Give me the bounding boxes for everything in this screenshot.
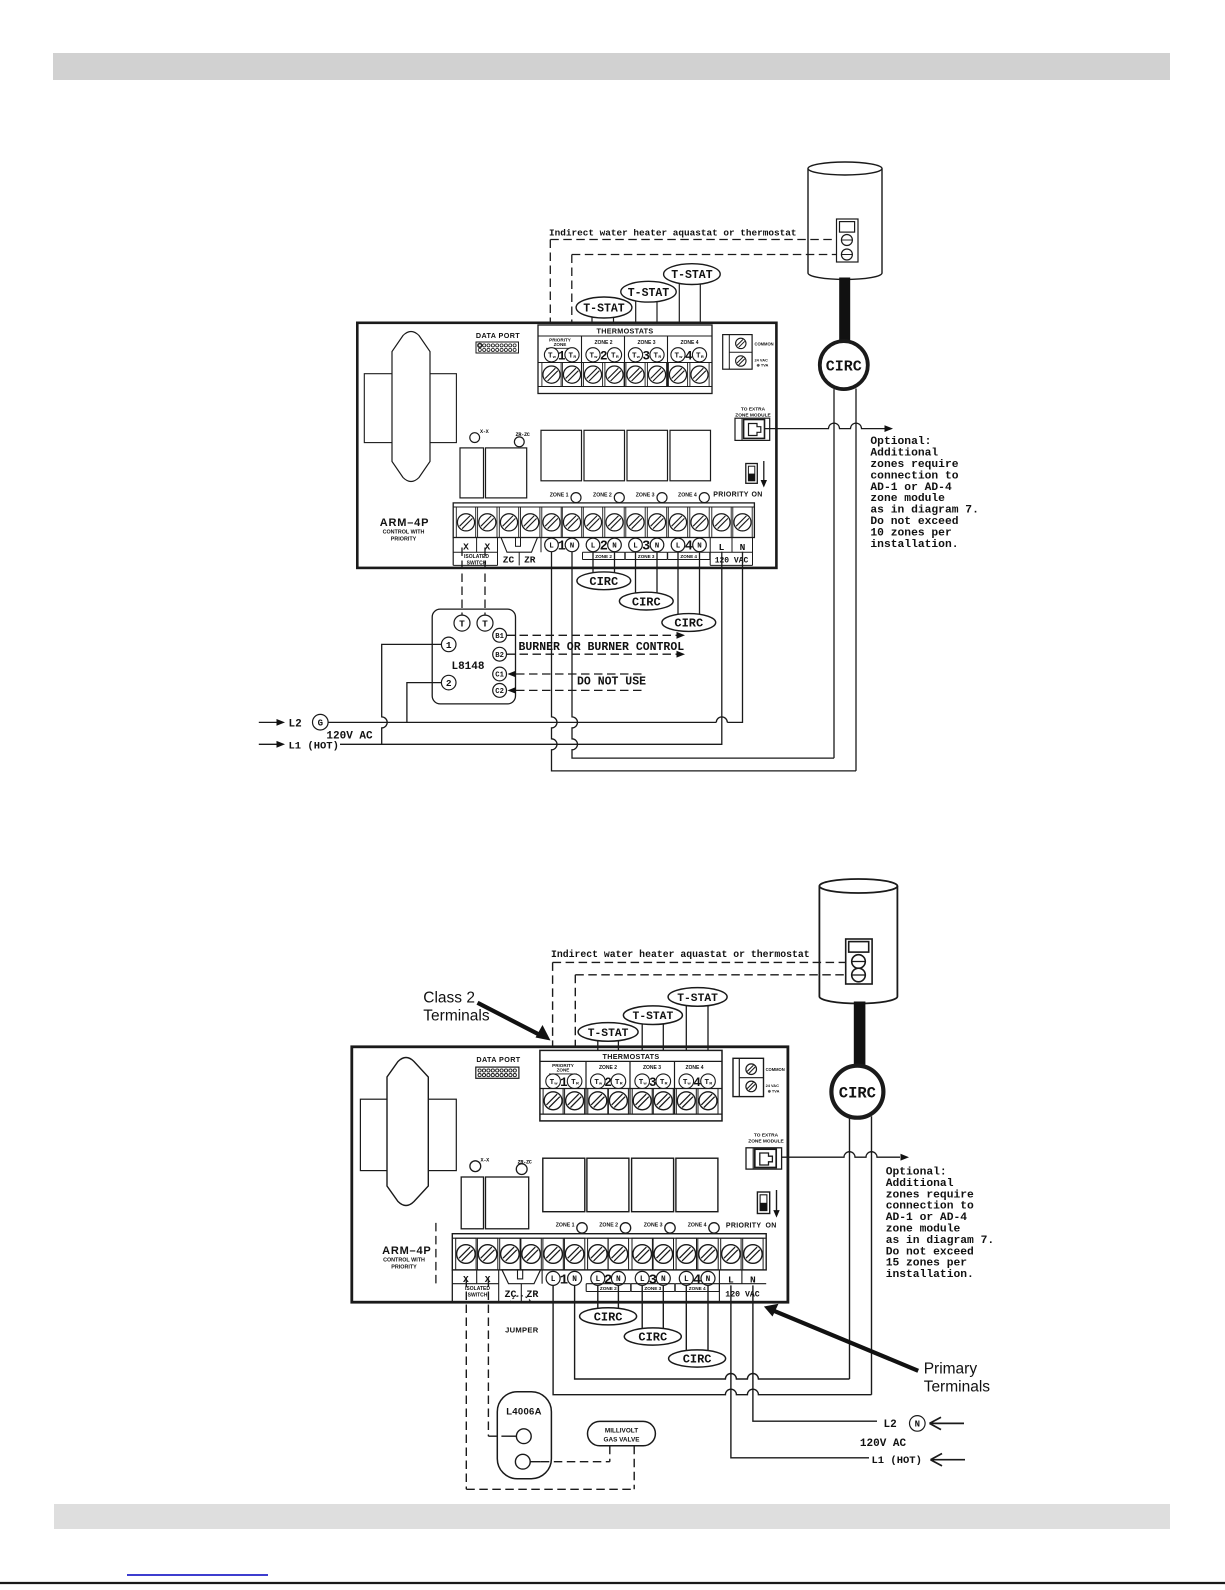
svg-text:T-STAT: T-STAT [583, 303, 625, 316]
svg-text:installation.: installation. [886, 1269, 974, 1281]
svg-text:THERMOSTATS: THERMOSTATS [597, 327, 654, 336]
svg-text:installation.: installation. [870, 539, 958, 551]
svg-text:ZONE 4: ZONE 4 [680, 340, 698, 346]
svg-text:10 zones per: 10 zones per [870, 527, 951, 539]
svg-text:zone module: zone module [870, 493, 945, 505]
svg-text:N: N [572, 1276, 577, 1284]
svg-text:R: R [665, 1081, 668, 1086]
svg-text:R: R [573, 354, 576, 359]
svg-text:zones require: zones require [870, 459, 958, 471]
svg-text:1: 1 [558, 349, 566, 363]
svg-text:Optional:: Optional: [886, 1167, 947, 1179]
svg-text:ZONE 3: ZONE 3 [636, 492, 655, 498]
svg-text:R: R [616, 354, 619, 359]
svg-text:C1: C1 [495, 672, 504, 680]
svg-text:R: R [709, 1081, 712, 1086]
svg-text:L2: L2 [884, 1419, 897, 1431]
svg-text:⊕ TVA: ⊕ TVA [768, 1089, 780, 1094]
svg-text:ZONE 3: ZONE 3 [644, 1286, 661, 1291]
svg-text:ZR: ZR [524, 555, 536, 566]
svg-text:CIRC: CIRC [674, 617, 703, 631]
svg-text:120 VAC: 120 VAC [715, 556, 749, 565]
svg-text:MILLIVOLT: MILLIVOLT [605, 1427, 638, 1434]
svg-text:15 zones per: 15 zones per [886, 1258, 967, 1270]
svg-text:N: N [612, 543, 617, 551]
svg-text:ZONE 2: ZONE 2 [593, 492, 612, 498]
svg-text:X: X [463, 542, 469, 553]
svg-text:2: 2 [600, 349, 608, 363]
svg-text:Do not exceed: Do not exceed [886, 1246, 974, 1258]
svg-text:CIRC: CIRC [594, 1311, 623, 1325]
svg-text:L: L [640, 1276, 645, 1284]
svg-text:ZONE 2: ZONE 2 [594, 340, 612, 346]
svg-text:ZONE 1: ZONE 1 [556, 1223, 575, 1229]
svg-text:ZONE MODULE: ZONE MODULE [748, 1139, 784, 1145]
svg-text:ZC: ZC [504, 1290, 516, 1301]
svg-text:PRIORITY: PRIORITY [391, 1264, 417, 1270]
svg-text:ZC: ZC [503, 555, 515, 566]
svg-text:24 VAC: 24 VAC [766, 1083, 780, 1088]
svg-text:4: 4 [693, 1076, 701, 1090]
svg-text:CIRC: CIRC [638, 1331, 667, 1345]
svg-text:CONTROL WITH: CONTROL WITH [383, 1258, 425, 1264]
svg-text:as in diagram 7.: as in diagram 7. [886, 1235, 994, 1247]
svg-text:L2: L2 [289, 719, 302, 731]
svg-text:L1 (HOT): L1 (HOT) [289, 741, 339, 753]
svg-text:Primary: Primary [924, 1360, 978, 1377]
svg-text:ARM–4P: ARM–4P [382, 1245, 431, 1257]
svg-text:L: L [633, 543, 638, 551]
svg-text:N: N [655, 543, 660, 551]
svg-text:L1 (HOT): L1 (HOT) [872, 1455, 922, 1467]
svg-text:T-STAT: T-STAT [677, 993, 718, 1005]
svg-text:1: 1 [560, 1272, 568, 1288]
svg-text:T-STAT: T-STAT [633, 1011, 674, 1023]
svg-text:Terminals: Terminals [423, 1007, 490, 1024]
svg-text:R: R [620, 1081, 623, 1086]
svg-text:SWITCH: SWITCH [468, 1292, 488, 1298]
svg-text:T: T [459, 619, 465, 630]
svg-text:X-X: X-X [481, 1158, 491, 1164]
svg-text:ZONE 4: ZONE 4 [689, 1286, 706, 1291]
svg-text:TO EXTRA: TO EXTRA [754, 1133, 779, 1139]
svg-text:COMMON: COMMON [755, 341, 774, 346]
svg-text:connection to: connection to [886, 1201, 974, 1213]
svg-text:THERMOSTATS: THERMOSTATS [603, 1052, 660, 1061]
svg-text:1: 1 [560, 1076, 568, 1090]
svg-text:Do not exceed: Do not exceed [870, 516, 958, 528]
svg-text:L: L [591, 543, 596, 551]
svg-text:zones require: zones require [886, 1189, 974, 1201]
svg-text:L: L [551, 1276, 556, 1284]
svg-text:ZONE 3: ZONE 3 [638, 554, 655, 559]
svg-text:L: L [595, 1276, 600, 1284]
svg-text:BURNER OR BURNER CONTROL: BURNER OR BURNER CONTROL [519, 641, 685, 654]
svg-text:Additional: Additional [886, 1178, 954, 1190]
svg-text:Terminals: Terminals [924, 1378, 991, 1395]
svg-text:PRIORITY: PRIORITY [713, 491, 748, 498]
svg-text:as in diagram 7.: as in diagram 7. [870, 505, 978, 517]
svg-text:DATA PORT: DATA PORT [476, 331, 520, 340]
svg-text:ON: ON [752, 491, 763, 498]
svg-text:ZONE 2: ZONE 2 [595, 554, 612, 559]
svg-text:ZONE 4: ZONE 4 [680, 554, 697, 559]
svg-text:L: L [684, 1276, 689, 1284]
svg-text:Optional:: Optional: [870, 436, 931, 448]
svg-text:CIRC: CIRC [839, 1084, 876, 1102]
svg-text:L: L [549, 543, 554, 551]
svg-text:ZONE 3: ZONE 3 [637, 340, 655, 346]
svg-text:L4006A: L4006A [506, 1406, 542, 1417]
svg-text:R: R [701, 354, 704, 359]
svg-text:T-STAT: T-STAT [588, 1028, 629, 1040]
svg-text:CIRC: CIRC [826, 359, 862, 376]
svg-text:DO NOT USE: DO NOT USE [577, 676, 646, 689]
svg-text:G: G [318, 718, 323, 728]
svg-text:AD-1 or AD-4: AD-1 or AD-4 [886, 1212, 968, 1224]
svg-text:ZONE: ZONE [554, 342, 567, 347]
svg-text:DATA PORT: DATA PORT [476, 1055, 520, 1064]
svg-text:3: 3 [649, 1076, 657, 1090]
svg-text:L: L [719, 542, 725, 553]
svg-text:2: 2 [604, 1076, 612, 1090]
svg-text:N: N [570, 543, 575, 551]
svg-text:N: N [661, 1276, 666, 1284]
svg-text:ZONE: ZONE [557, 1068, 570, 1073]
svg-text:2: 2 [446, 678, 452, 689]
svg-text:zone module: zone module [886, 1224, 961, 1236]
svg-text:ZONE 4: ZONE 4 [678, 492, 697, 498]
svg-text:Indirect water heater aquastat: Indirect water heater aquastat or thermo… [551, 949, 810, 960]
svg-text:TO EXTRA: TO EXTRA [741, 406, 766, 412]
svg-text:4: 4 [685, 349, 693, 363]
svg-text:X-X: X-X [480, 429, 490, 435]
svg-text:ZONE 3: ZONE 3 [643, 1065, 661, 1071]
svg-text:ISOLATED: ISOLATED [465, 1286, 490, 1292]
svg-text:N: N [706, 1276, 711, 1284]
svg-text:ZONE 2: ZONE 2 [600, 1286, 617, 1291]
svg-text:⊕ TVA: ⊕ TVA [757, 363, 769, 368]
svg-text:ON: ON [766, 1223, 777, 1230]
svg-text:L: L [676, 543, 681, 551]
svg-text:ARM–4P: ARM–4P [380, 517, 429, 529]
svg-text:PRIORITY: PRIORITY [726, 1223, 761, 1230]
svg-text:ZONE 4: ZONE 4 [685, 1065, 703, 1071]
svg-text:CIRC: CIRC [632, 595, 661, 609]
svg-text:24 VAC: 24 VAC [755, 357, 769, 362]
svg-text:Class 2: Class 2 [423, 989, 475, 1006]
svg-text:ZONE 3: ZONE 3 [644, 1223, 663, 1229]
svg-text:N: N [616, 1276, 621, 1284]
svg-text:3: 3 [642, 349, 650, 363]
svg-text:Additional: Additional [870, 448, 938, 460]
svg-text:R: R [658, 354, 661, 359]
svg-text:ZONE 1: ZONE 1 [550, 492, 569, 498]
svg-text:N: N [740, 542, 746, 553]
svg-text:R: R [576, 1081, 579, 1086]
svg-text:C2: C2 [495, 688, 504, 696]
svg-text:L8148: L8148 [451, 661, 484, 673]
svg-text:COMMON: COMMON [766, 1067, 785, 1072]
svg-text:ZONE MODULE: ZONE MODULE [735, 412, 771, 418]
svg-text:ZONE 4: ZONE 4 [688, 1223, 707, 1229]
svg-text:ZONE 2: ZONE 2 [599, 1065, 617, 1071]
svg-text:T-STAT: T-STAT [671, 269, 713, 282]
svg-text:CONTROL WITH: CONTROL WITH [383, 530, 425, 536]
svg-text:B2: B2 [495, 652, 504, 660]
svg-text:ZONE 2: ZONE 2 [599, 1223, 618, 1229]
svg-text:1: 1 [446, 640, 452, 651]
svg-text:1: 1 [558, 540, 566, 555]
svg-text:ZR: ZR [526, 1290, 538, 1301]
svg-text:AD-1 or AD-4: AD-1 or AD-4 [870, 482, 952, 494]
svg-text:connection to: connection to [870, 470, 958, 482]
svg-text:T-STAT: T-STAT [628, 287, 670, 300]
svg-text:N: N [697, 543, 702, 551]
svg-text:PRIORITY: PRIORITY [391, 536, 417, 542]
svg-text:120V AC: 120V AC [860, 1438, 907, 1450]
svg-text:N: N [915, 1420, 920, 1430]
svg-text:CIRC: CIRC [589, 575, 618, 589]
svg-text:CIRC: CIRC [683, 1353, 712, 1367]
svg-text:GAS VALVE: GAS VALVE [604, 1436, 641, 1443]
svg-text:JUMPER: JUMPER [505, 1326, 539, 1335]
svg-text:T: T [482, 619, 488, 630]
svg-text:B1: B1 [495, 633, 504, 641]
svg-text:Indirect water heater aquastat: Indirect water heater aquastat or thermo… [549, 227, 797, 238]
